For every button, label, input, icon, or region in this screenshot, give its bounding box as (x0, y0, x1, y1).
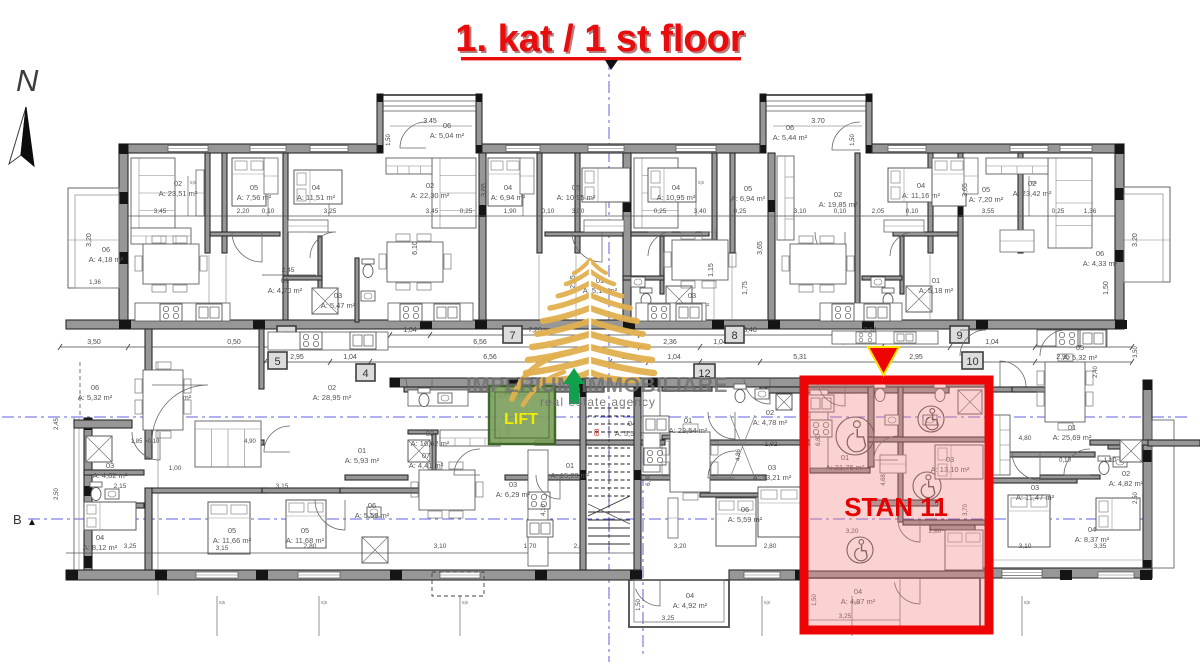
svg-text:04: 04 (312, 183, 320, 192)
svg-text:A: 6,94 m²: A: 6,94 m² (491, 193, 526, 202)
svg-text:1,04: 1,04 (403, 327, 417, 334)
svg-text:4,10: 4,10 (541, 504, 547, 516)
svg-text:1,92: 1,92 (765, 441, 778, 448)
svg-text:3.70: 3.70 (811, 118, 825, 125)
svg-text:0,25: 0,25 (654, 208, 667, 215)
svg-text:8: 8 (731, 330, 737, 342)
svg-text:2,15: 2,15 (114, 483, 127, 490)
svg-text:5|5: 5|5 (764, 600, 771, 605)
svg-text:04: 04 (504, 183, 512, 192)
svg-text:A: 5,32 m²: A: 5,32 m² (78, 393, 113, 402)
svg-text:1,00: 1,00 (169, 465, 182, 472)
svg-text:A: 4,92 m²: A: 4,92 m² (673, 601, 708, 610)
svg-text:0,10: 0,10 (906, 208, 919, 215)
svg-text:A: 10,95 m²: A: 10,95 m² (557, 193, 596, 202)
svg-text:04: 04 (672, 183, 680, 192)
svg-text:4: 4 (362, 368, 368, 380)
svg-text:1,10: 1,10 (1104, 457, 1117, 464)
svg-text:03: 03 (509, 480, 517, 489)
svg-text:04: 04 (686, 591, 694, 600)
svg-text:05: 05 (250, 183, 258, 192)
svg-text:1,85 =0,10: 1,85 =0,10 (131, 439, 160, 445)
svg-text:02: 02 (426, 429, 434, 438)
svg-text:4,90: 4,90 (244, 439, 256, 445)
svg-text:A: 10,95 m²: A: 10,95 m² (657, 193, 696, 202)
svg-text:02: 02 (1028, 179, 1036, 188)
svg-text:A: 13,21 m²: A: 13,21 m² (753, 473, 792, 482)
svg-text:N: N (16, 63, 39, 98)
svg-text:1,15: 1,15 (708, 263, 715, 277)
svg-text:3,65: 3,65 (481, 183, 488, 197)
svg-text:0,10: 0,10 (834, 208, 847, 215)
svg-text:A: 5,93 m²: A: 5,93 m² (345, 456, 380, 465)
svg-text:6,80: 6,80 (646, 474, 652, 486)
svg-text:03: 03 (1031, 483, 1039, 492)
svg-text:2,20: 2,20 (237, 208, 250, 215)
svg-text:05: 05 (744, 184, 752, 193)
svg-text:3,10: 3,10 (794, 208, 807, 215)
svg-text:05: 05 (982, 185, 990, 194)
svg-text:3,55: 3,55 (982, 208, 995, 215)
svg-text:2,05: 2,05 (872, 208, 885, 215)
svg-text:1,36: 1,36 (89, 280, 101, 286)
svg-text:2,95: 2,95 (909, 354, 923, 361)
svg-text:A: 23,42 m²: A: 23,42 m² (1013, 189, 1052, 198)
svg-text:3,45: 3,45 (426, 208, 439, 215)
svg-text:0,10: 0,10 (542, 208, 555, 215)
svg-text:5|5: 5|5 (462, 600, 469, 605)
svg-text:5,31: 5,31 (793, 354, 807, 361)
svg-text:7: 7 (509, 330, 515, 342)
svg-text:06: 06 (741, 505, 749, 514)
svg-text:06: 06 (1096, 249, 1104, 258)
svg-text:2,45: 2,45 (54, 418, 60, 430)
svg-text:A: 25,69 m²: A: 25,69 m² (1053, 433, 1092, 442)
svg-text:A: 5,59 m²: A: 5,59 m² (728, 515, 763, 524)
svg-text:2,36: 2,36 (663, 339, 677, 346)
svg-text:05: 05 (572, 183, 580, 192)
svg-text:5|5: 5|5 (321, 600, 328, 605)
svg-text:6,56: 6,56 (483, 354, 497, 361)
svg-text:3,50: 3,50 (1133, 346, 1139, 358)
svg-text:3,00: 3,00 (572, 208, 585, 215)
svg-text:A: 6,29 m²: A: 6,29 m² (496, 490, 531, 499)
svg-text:1,90: 1,90 (504, 208, 517, 215)
svg-text:02: 02 (426, 181, 434, 190)
svg-text:03: 03 (768, 463, 776, 472)
svg-text:3,15: 3,15 (276, 483, 289, 490)
svg-text:0,50: 0,50 (227, 339, 241, 346)
svg-text:1,04: 1,04 (343, 354, 357, 361)
svg-text:A: 5,32 m²: A: 5,32 m² (1063, 353, 1098, 362)
svg-text:A: 11,66 m²: A: 11,66 m² (213, 536, 252, 545)
svg-text:3,35: 3,35 (1094, 543, 1107, 550)
svg-text:05: 05 (1076, 343, 1084, 352)
svg-text:06: 06 (786, 123, 794, 132)
svg-text:2,45: 2,45 (282, 267, 295, 274)
svg-text:2,95: 2,95 (290, 354, 304, 361)
svg-text:01: 01 (566, 461, 574, 470)
svg-text:0,10: 0,10 (1059, 458, 1071, 464)
svg-text:A: 11,51 m²: A: 11,51 m² (297, 193, 336, 202)
svg-text:5|5: 5|5 (219, 600, 226, 605)
svg-text:2,80: 2,80 (764, 543, 777, 550)
svg-text:01: 01 (684, 416, 692, 425)
svg-text:A: 5,44 m²: A: 5,44 m² (773, 133, 808, 142)
svg-text:4,86: 4,86 (736, 449, 742, 461)
svg-text:2,80: 2,80 (304, 543, 317, 550)
svg-text:A: 22,54 m²: A: 22,54 m² (669, 426, 708, 435)
svg-text:3,65: 3,65 (962, 183, 969, 197)
svg-text:06: 06 (443, 121, 451, 130)
svg-text:B: B (13, 512, 22, 527)
svg-text:0,25: 0,25 (1052, 208, 1065, 215)
svg-text:A: 22,30 m²: A: 22,30 m² (411, 191, 450, 200)
svg-text:3,10: 3,10 (1019, 543, 1032, 550)
svg-text:1,50: 1,50 (636, 599, 642, 611)
svg-text:3,10: 3,10 (434, 543, 447, 550)
svg-text:A: 5,18 m²: A: 5,18 m² (919, 286, 954, 295)
svg-text:2,50: 2,50 (54, 488, 60, 500)
svg-text:3,25: 3,25 (124, 543, 137, 550)
svg-text:03: 03 (106, 461, 114, 470)
svg-text:3,15: 3,15 (216, 545, 229, 552)
svg-text:06: 06 (368, 501, 376, 510)
svg-text:6,10: 6,10 (412, 241, 419, 255)
svg-text:01: 01 (281, 276, 289, 285)
svg-text:01: 01 (932, 276, 940, 285)
svg-text:A: 11,16 m²: A: 11,16 m² (902, 191, 941, 200)
svg-text:3,25: 3,25 (662, 615, 675, 622)
svg-text:A: 15,23 m²: A: 15,23 m² (551, 471, 590, 480)
svg-text:IMPERIUM IMMOBILIARE: IMPERIUM IMMOBILIARE (466, 374, 728, 397)
svg-text:3,20: 3,20 (674, 543, 687, 550)
svg-text:A: 5,59 m²: A: 5,59 m² (355, 511, 390, 520)
svg-text:6,56: 6,56 (473, 339, 487, 346)
svg-text:A: 7,20 m²: A: 7,20 m² (969, 195, 1004, 204)
svg-text:A: 4,33 m²: A: 4,33 m² (1083, 259, 1118, 268)
svg-text:A: 16,62 m²: A: 16,62 m² (411, 439, 450, 448)
svg-text:0,25: 0,25 (734, 208, 747, 215)
svg-text:A: 5,47 m²: A: 5,47 m² (321, 301, 356, 310)
svg-text:07: 07 (422, 451, 430, 460)
svg-text:05: 05 (228, 526, 236, 535)
svg-text:5|5: 5|5 (1024, 600, 1031, 605)
svg-text:real estate agency: real estate agency (540, 395, 656, 409)
svg-text:A: 4,41 m²: A: 4,41 m² (409, 461, 444, 470)
svg-text:A: 5,04 m²: A: 5,04 m² (430, 131, 465, 140)
svg-text:3,65: 3,65 (757, 241, 764, 255)
svg-text:2,50: 2,50 (1133, 492, 1139, 504)
svg-text:3,45: 3,45 (154, 208, 167, 215)
svg-text:04: 04 (917, 181, 925, 190)
svg-text:2,40: 2,40 (1093, 366, 1099, 378)
svg-text:1,75: 1,75 (742, 281, 749, 295)
svg-text:5|5: 5|5 (698, 180, 705, 185)
svg-text:1,04: 1,04 (667, 354, 681, 361)
svg-text:A: 11,47 m²: A: 11,47 m² (1016, 493, 1055, 502)
svg-text:02: 02 (834, 190, 842, 199)
svg-text:04: 04 (1088, 525, 1096, 534)
svg-text:▲: ▲ (27, 517, 37, 528)
svg-text:06: 06 (102, 245, 110, 254)
svg-text:06: 06 (91, 383, 99, 392)
svg-text:A: 4,78 m²: A: 4,78 m² (753, 418, 788, 427)
svg-text:STAN 11: STAN 11 (844, 492, 948, 522)
svg-text:02: 02 (766, 408, 774, 417)
svg-text:1,50: 1,50 (386, 134, 392, 146)
svg-text:A: 4,70 m²: A: 4,70 m² (268, 286, 303, 295)
svg-text:A: 4,82 m²: A: 4,82 m² (1109, 479, 1144, 488)
svg-text:01: 01 (358, 446, 366, 455)
svg-text:1,70: 1,70 (524, 543, 537, 550)
svg-text:03: 03 (334, 291, 342, 300)
svg-text:1,50: 1,50 (1103, 281, 1110, 295)
svg-text:03: 03 (688, 291, 696, 300)
svg-text:A: 4,82 m²: A: 4,82 m² (93, 471, 128, 480)
svg-text:0,10: 0,10 (262, 208, 275, 215)
svg-text:A: 7,56 m²: A: 7,56 m² (237, 193, 272, 202)
svg-text:02: 02 (174, 179, 182, 188)
svg-text:02: 02 (328, 383, 336, 392)
svg-text:3,50: 3,50 (87, 339, 101, 346)
svg-text:1,04: 1,04 (985, 339, 999, 346)
svg-text:01: 01 (1068, 423, 1076, 432)
svg-text:0,25: 0,25 (460, 208, 473, 215)
svg-text:1,36: 1,36 (1084, 208, 1097, 215)
svg-text:A: 8,12 m²: A: 8,12 m² (83, 543, 118, 552)
svg-text:A: 6,94 m²: A: 6,94 m² (731, 194, 766, 203)
svg-text:4,80: 4,80 (1019, 435, 1032, 442)
svg-text:3,25: 3,25 (324, 208, 337, 215)
svg-text:9: 9 (956, 330, 962, 342)
svg-text:02: 02 (1122, 469, 1130, 478)
svg-text:A: 23,51 m²: A: 23,51 m² (159, 189, 198, 198)
svg-text:1,50: 1,50 (850, 134, 856, 146)
svg-text:10: 10 (966, 356, 978, 368)
svg-text:3,40: 3,40 (694, 208, 707, 215)
svg-text:5: 5 (274, 356, 280, 368)
svg-text:3,40: 3,40 (743, 327, 757, 334)
svg-text:1. kat / 1 st floor: 1. kat / 1 st floor (455, 18, 745, 60)
svg-text:3.45: 3.45 (423, 118, 437, 125)
svg-text:04: 04 (96, 533, 104, 542)
svg-text:05: 05 (301, 526, 309, 535)
svg-text:A: 28,95 m²: A: 28,95 m² (313, 393, 352, 402)
svg-text:LIFT: LIFT (504, 411, 538, 428)
